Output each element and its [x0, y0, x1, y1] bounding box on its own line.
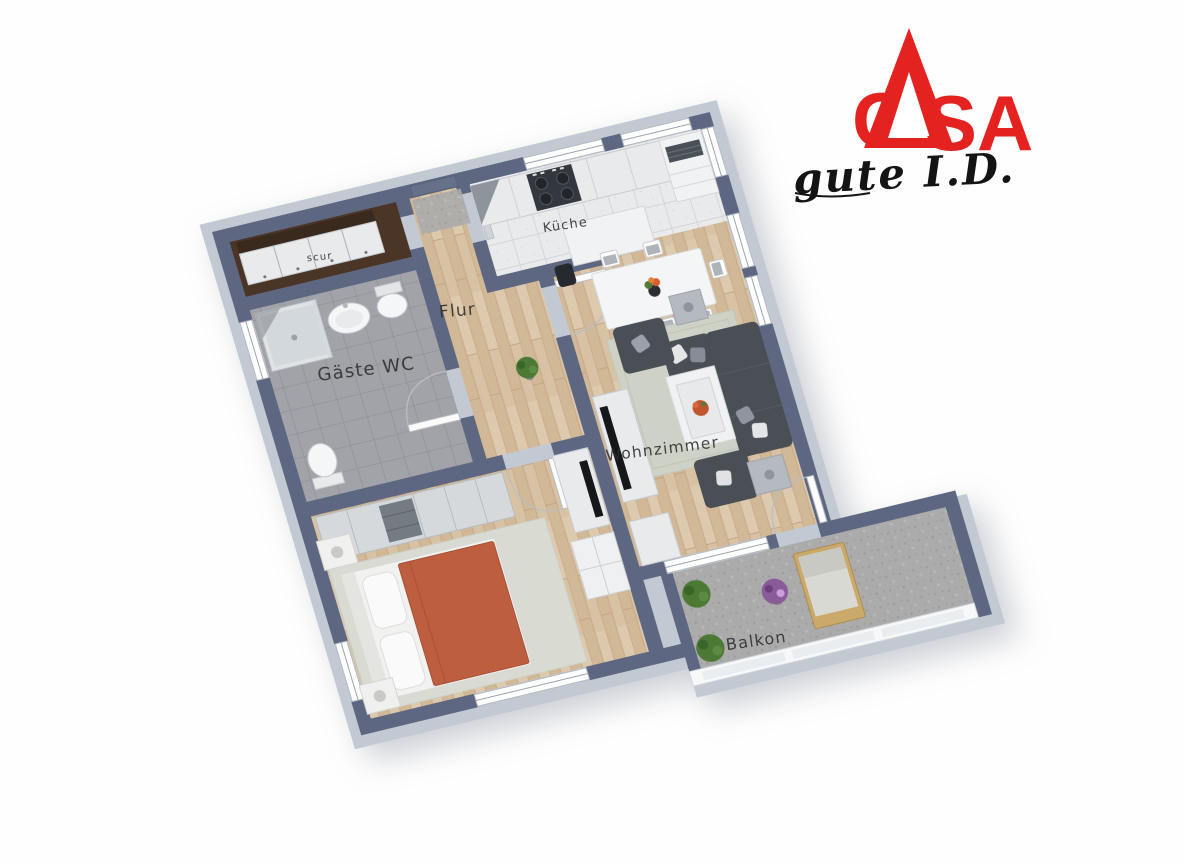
floorplan-page: Flur Küche Gäste WC Wohnzimmer Balkon sc… — [0, 0, 1183, 863]
casa-logo: C SA gute I.D. — [792, 28, 1034, 204]
floor-plan-image: Flur Küche Gäste WC Wohnzimmer Balkon sc… — [0, 0, 1183, 863]
room-label-flur: Flur — [438, 299, 477, 322]
logo-tagline: gute I.D. — [792, 143, 1017, 204]
